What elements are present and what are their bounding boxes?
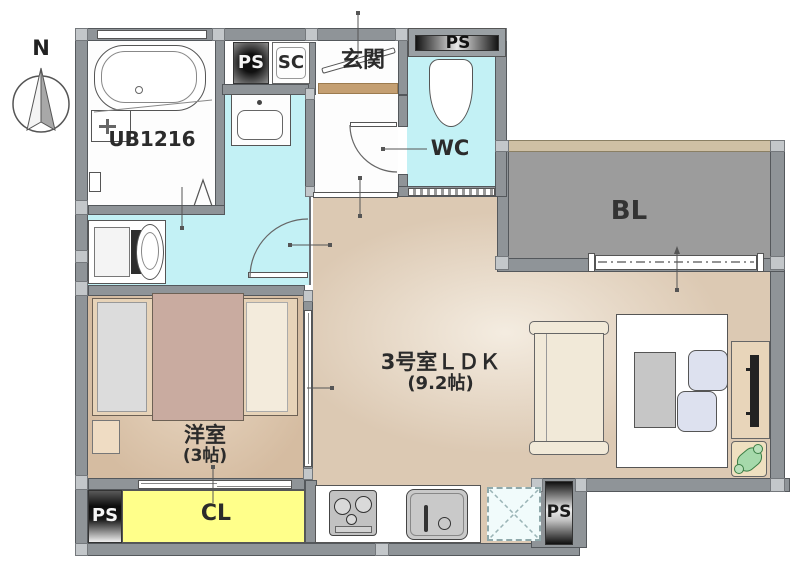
sliding-door-track-line bbox=[217, 486, 291, 487]
shoe-cupboard-label: SC bbox=[278, 53, 304, 74]
pipe-shaft-kitchen-side: PS bbox=[545, 481, 573, 545]
wall-pillar bbox=[75, 28, 88, 41]
plant-leaf bbox=[734, 464, 744, 474]
wall-pillar bbox=[495, 256, 509, 270]
balcony-outer-band bbox=[497, 140, 785, 152]
balcony-window-cap bbox=[757, 253, 764, 272]
wall bbox=[398, 95, 408, 127]
sliding-door-track-line bbox=[141, 483, 217, 484]
balcony-window-cap bbox=[588, 253, 595, 272]
wall-pillar bbox=[75, 475, 88, 490]
wall-pillar bbox=[75, 281, 88, 296]
bathtub-drain bbox=[135, 86, 143, 94]
ldk-floor bbox=[313, 197, 505, 480]
bath-fixture bbox=[89, 172, 101, 192]
wall bbox=[398, 40, 408, 95]
compass-north-label: N bbox=[28, 36, 54, 60]
sink-faucet bbox=[424, 505, 428, 532]
balcony-sliding-window bbox=[595, 255, 757, 270]
wall bbox=[565, 478, 790, 492]
western-room-name: 洋室 bbox=[160, 423, 250, 447]
wall-pillar bbox=[495, 140, 509, 152]
washroom-door-leaf bbox=[248, 272, 308, 278]
ldk-room-size: (9.2帖) bbox=[363, 374, 518, 395]
sofa-body bbox=[534, 333, 604, 445]
wall-pillar bbox=[75, 200, 88, 215]
western-room-label: 洋室 (3帖) bbox=[160, 423, 250, 467]
ldk-label: 3号室ＬＤＫ (9.2帖) bbox=[363, 350, 518, 395]
sink-inner-rim bbox=[410, 493, 464, 536]
bed-duvet bbox=[152, 293, 244, 421]
tv-foot bbox=[746, 368, 751, 371]
washbasin-cabinet bbox=[231, 94, 291, 146]
wall-pillar bbox=[75, 250, 88, 263]
tv bbox=[750, 355, 759, 427]
pipe-shaft-label: PS bbox=[446, 34, 471, 54]
wall-pillar bbox=[770, 140, 785, 152]
pipe-shaft-bottom-left: PS bbox=[88, 490, 122, 543]
bathtub bbox=[94, 45, 206, 111]
sliding-door-track-line bbox=[308, 313, 309, 464]
wall bbox=[305, 90, 315, 197]
stove-burner bbox=[334, 498, 351, 515]
stove-grill bbox=[335, 526, 372, 533]
wall-pillar bbox=[212, 28, 225, 41]
entrance-label: 玄関 bbox=[327, 48, 399, 73]
wall bbox=[75, 543, 580, 556]
wall bbox=[215, 40, 225, 215]
washing-machine-body bbox=[94, 227, 130, 277]
compass-rose bbox=[10, 60, 74, 136]
stove-burner bbox=[355, 496, 372, 513]
pipe-shaft-label-wrap: PS bbox=[409, 29, 507, 58]
wall bbox=[770, 140, 785, 492]
side-table bbox=[92, 420, 120, 454]
plant-pot bbox=[731, 441, 767, 477]
washing-machine bbox=[88, 220, 166, 284]
closet-sliding-door bbox=[138, 480, 292, 489]
stove-burner bbox=[346, 514, 357, 525]
compass: N bbox=[10, 36, 76, 136]
kitchen-sink bbox=[406, 489, 468, 540]
floor-plan: PS SC PS PS PS N bbox=[0, 0, 800, 568]
western-room-size: (3帖) bbox=[160, 447, 250, 467]
western-room-sliding-door bbox=[304, 310, 312, 467]
bathtub-inner-rim bbox=[101, 51, 197, 103]
wall-pillar bbox=[75, 543, 88, 556]
pipe-shaft-top-left: PS bbox=[233, 42, 269, 84]
wall-pillar bbox=[305, 88, 315, 100]
washbasin-bowl bbox=[237, 110, 283, 140]
floor-cushion bbox=[688, 350, 728, 391]
washing-machine-drum-inner bbox=[141, 232, 159, 270]
refrigerator-space bbox=[487, 487, 541, 541]
plant-leaf bbox=[753, 444, 763, 454]
wall-pillar bbox=[770, 256, 785, 270]
floor-cushion bbox=[677, 391, 717, 432]
balcony-label: BL bbox=[605, 197, 653, 227]
pipe-shaft-label: PS bbox=[547, 503, 572, 523]
washbasin-faucet-dot bbox=[257, 100, 262, 105]
wall-pillar bbox=[375, 543, 389, 556]
wall-pillar bbox=[395, 28, 408, 41]
bed-pillow-section bbox=[97, 302, 147, 412]
hall-floor bbox=[313, 95, 398, 192]
toilet-vent-strip bbox=[408, 188, 495, 196]
bed-sheet-section bbox=[246, 302, 288, 412]
hall-step-strip bbox=[313, 192, 398, 198]
closet-label: CL bbox=[193, 501, 239, 526]
pipe-shaft-toilet-side: PS bbox=[408, 28, 506, 57]
toilet-label: WC bbox=[427, 136, 473, 160]
wall-pillar bbox=[575, 478, 587, 492]
wall bbox=[88, 205, 225, 215]
wall-pillar bbox=[770, 478, 785, 492]
toilet-door-leaf bbox=[350, 122, 397, 127]
pipe-shaft-label: PS bbox=[92, 506, 118, 527]
wall-pillar bbox=[303, 468, 313, 480]
sink-drain bbox=[438, 517, 451, 530]
pipe-shaft-label: PS bbox=[238, 53, 264, 74]
leader-dot bbox=[356, 11, 360, 15]
washing-machine-drum bbox=[136, 224, 164, 280]
tv-foot bbox=[746, 412, 751, 415]
sofa-backrest-line bbox=[546, 334, 547, 444]
wall-pillar bbox=[305, 28, 318, 41]
sofa-armrest bbox=[529, 441, 609, 455]
shoe-cupboard: SC bbox=[272, 42, 310, 84]
stove bbox=[329, 490, 377, 536]
wall-pillar bbox=[303, 290, 313, 302]
entrance-step bbox=[318, 83, 398, 94]
ldk-room-name: 3号室ＬＤＫ bbox=[363, 350, 518, 374]
unit-bath-label: UB1216 bbox=[100, 128, 204, 151]
low-table bbox=[634, 352, 676, 428]
bath-window bbox=[97, 30, 207, 39]
